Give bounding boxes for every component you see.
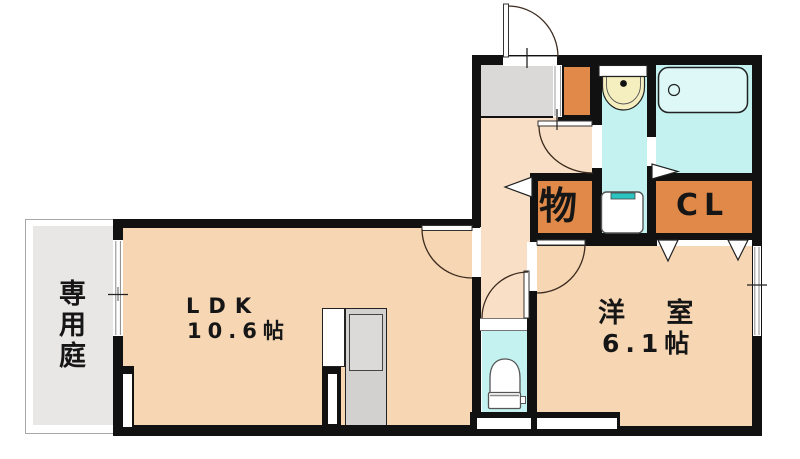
toilet-flush-knob: [521, 397, 526, 404]
washroom-door-leaf: [538, 121, 592, 126]
toilet-bowl: [490, 359, 520, 393]
garden-label: 専用庭: [56, 279, 83, 372]
western-door-leaf: [537, 240, 585, 245]
storage-label: 物: [539, 187, 577, 225]
bath-opening-arrow: [652, 164, 678, 179]
storage-opening-arrow: [505, 177, 532, 197]
bathtub-drain: [669, 85, 680, 96]
western-size-label: 6.1帖: [602, 331, 695, 356]
fixtures-overlay: [0, 0, 800, 459]
entrance-door-leaf: [504, 4, 509, 57]
toilet-door-swing-arc: [482, 272, 528, 318]
closet-door-triangle-left: [658, 240, 678, 261]
western-door-swing-arc: [537, 245, 585, 293]
closet-label: CL: [676, 191, 729, 221]
ldk-size-label: 10.6帖: [187, 321, 290, 342]
toilet-door-leaf: [524, 271, 529, 318]
entrance-door-swing-arc: [508, 6, 558, 57]
closet-door-triangle-right: [728, 240, 748, 260]
western-label: 洋 室: [598, 300, 693, 327]
washroom-door-swing-arc: [539, 126, 593, 173]
ldk-door-swing-arc: [422, 229, 472, 278]
washing-machine-faucet-panel: [611, 193, 635, 199]
washbasin-faucet: [620, 80, 627, 87]
ldk-door-leaf: [422, 226, 472, 231]
floor-plan: 専用庭 LDK 10.6帖 物 CL 洋 室 6.1帖: [0, 0, 800, 459]
ldk-label: LDK: [186, 296, 260, 317]
washbasin-counter: [599, 66, 647, 77]
